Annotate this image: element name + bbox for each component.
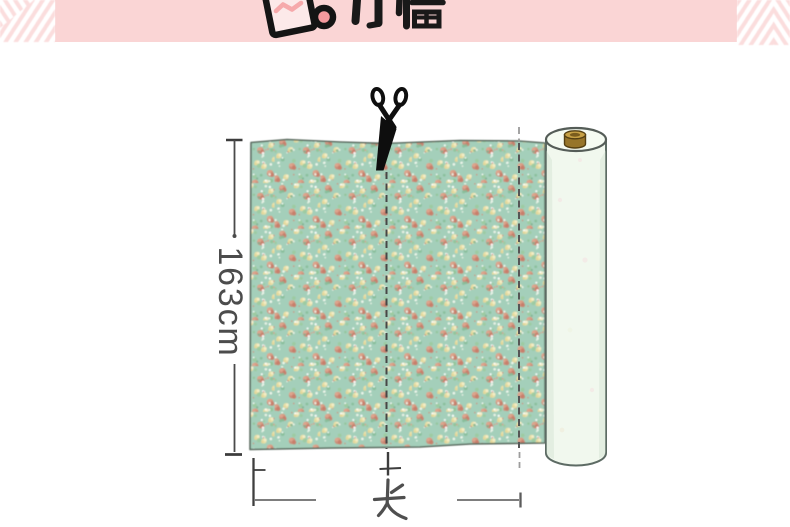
svg-text:163cm: 163cm bbox=[211, 246, 249, 357]
